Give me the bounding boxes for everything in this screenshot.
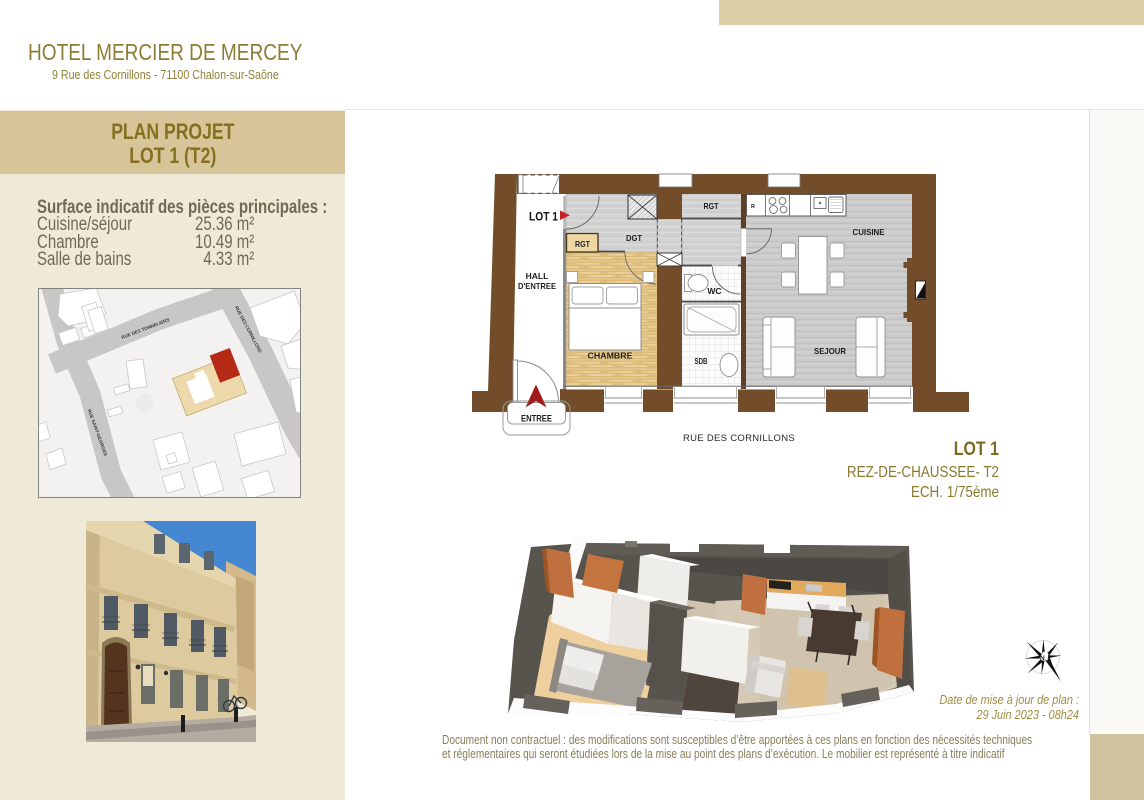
svg-text:WC: WC <box>707 286 721 296</box>
svg-text:R: R <box>751 204 755 210</box>
svg-text:SDB: SDB <box>695 357 708 366</box>
svg-text:RGT: RGT <box>704 201 720 211</box>
svg-text:ENTREE: ENTREE <box>521 414 552 424</box>
svg-text:RGT: RGT <box>575 240 590 249</box>
svg-text:DGT: DGT <box>626 233 643 243</box>
svg-text:HALL: HALL <box>526 271 549 281</box>
svg-text:SEJOUR: SEJOUR <box>814 346 846 356</box>
svg-text:CUISINE: CUISINE <box>853 227 885 237</box>
svg-text:LOT 1: LOT 1 <box>529 212 559 224</box>
svg-text:D'ENTREE: D'ENTREE <box>518 281 556 291</box>
svg-text:CHAMBRE: CHAMBRE <box>588 351 633 361</box>
svg-text:N: N <box>1040 655 1045 662</box>
